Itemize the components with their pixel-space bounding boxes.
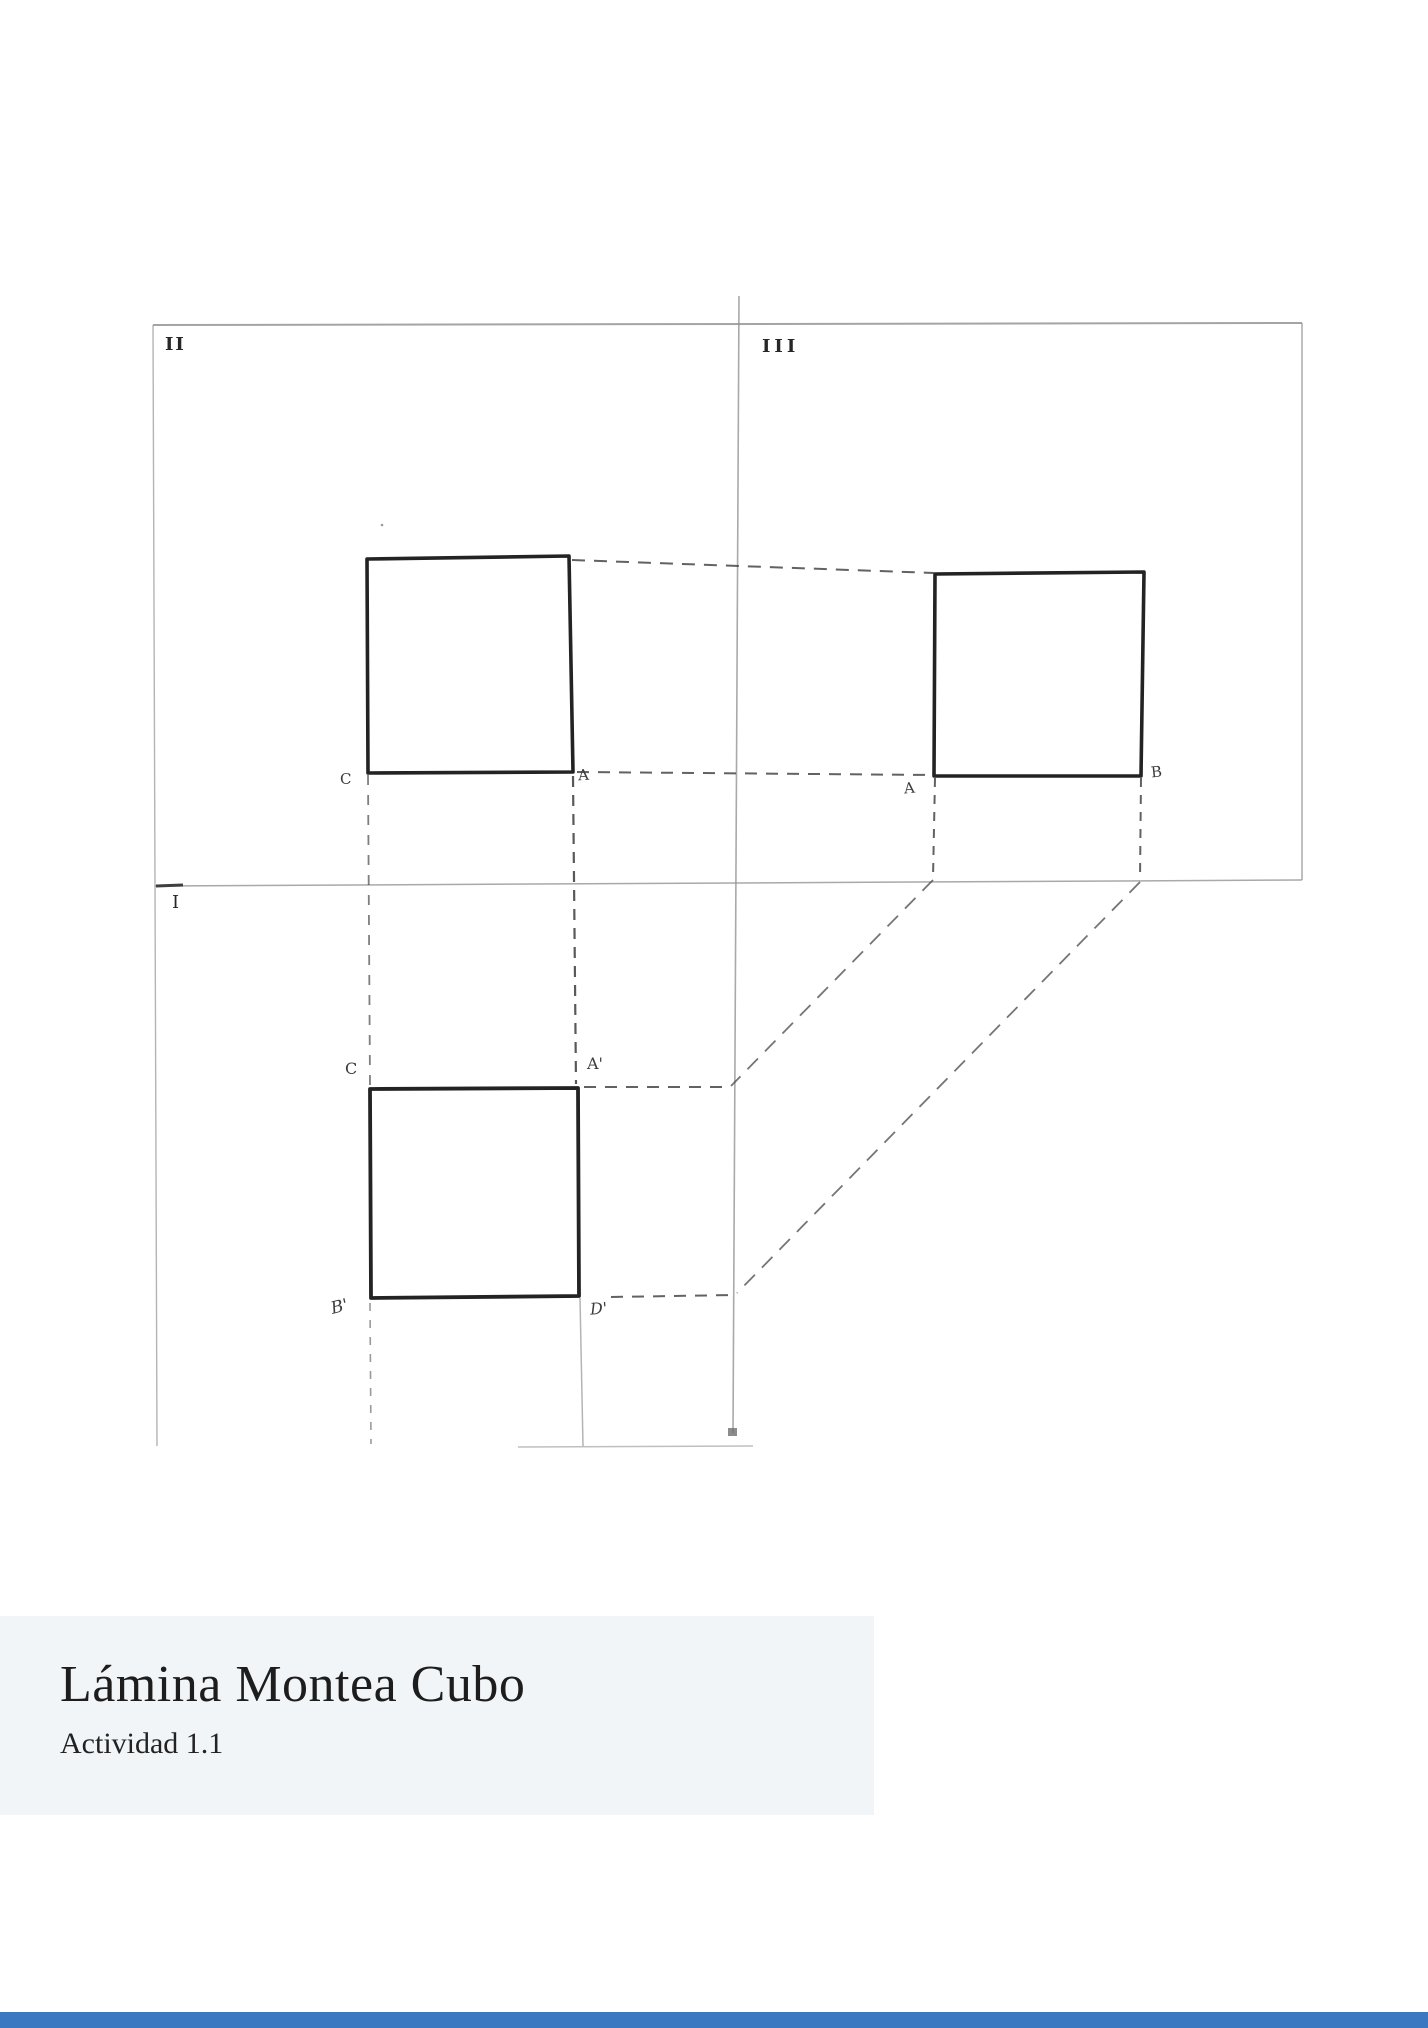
point-label-plan-b: B' (329, 1297, 350, 1318)
point-label-side-b: B (1150, 764, 1163, 780)
page-subtitle: Actividad 1.1 (60, 1727, 223, 1760)
axis-end-mark (728, 1428, 737, 1436)
point-label-side-a: A (903, 781, 915, 797)
top-transfer-dashed-line (572, 560, 934, 573)
quadrant-label-iii: III (762, 338, 799, 356)
point-label-plan-d: D' (589, 1300, 607, 1317)
ground-line-start-tick (156, 885, 183, 886)
miter-diagonal-a (731, 880, 933, 1086)
page-title: Lámina Montea Cubo (60, 1656, 525, 1713)
plan-right-edge-extension (580, 1298, 583, 1446)
paper-speck (381, 524, 384, 527)
miter-diagonals (731, 880, 1140, 1293)
border-bottom-short-line (518, 1446, 753, 1447)
projection-side-right-vertical (1140, 778, 1141, 880)
sheet-border (153, 323, 1302, 1447)
quadrant-label-ii: II (165, 336, 186, 354)
miter-diagonal-b (737, 882, 1140, 1293)
front-view-square (367, 556, 573, 773)
footer-accent-bar (0, 2012, 1428, 2028)
point-label-front-a: A (577, 768, 589, 784)
scanned-sheet-page: II III I C A A B C A' B' D' Lámina Monte… (0, 0, 1428, 2028)
border-top-line (153, 323, 1302, 325)
projection-side-left-vertical (933, 778, 935, 878)
point-label-front-c: C (340, 772, 351, 787)
axis-lines (381, 296, 739, 1446)
bottom-transfer-dashed-line (577, 772, 933, 775)
plan-view-square (370, 1088, 579, 1298)
side-view-square (934, 572, 1144, 776)
plan-bottom-dashed-line (611, 1295, 734, 1297)
projection-front-left-vertical (368, 775, 370, 1086)
central-vertical-axis (733, 296, 739, 1433)
point-label-plan-a: A' (587, 1056, 603, 1072)
cube-view-squares (367, 556, 1144, 1298)
ground-fold-line (155, 880, 1302, 886)
construction-dashed-lines (368, 560, 1141, 1444)
point-label-plan-c: C (345, 1061, 357, 1077)
plan-left-edge-extension-dashed (370, 1303, 371, 1444)
quadrant-label-i: I (172, 894, 181, 912)
projection-front-right-vertical (573, 776, 576, 1084)
title-block (0, 1616, 874, 1815)
